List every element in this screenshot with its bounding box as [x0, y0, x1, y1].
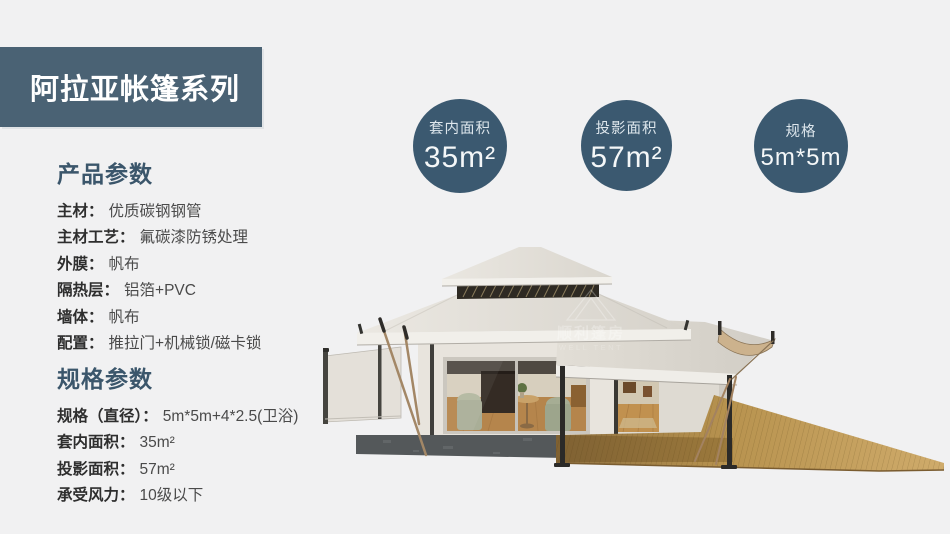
tent-cupola [442, 247, 612, 299]
tent-corner-post [430, 342, 434, 435]
param-row-material: 主材：优质碳钢钢管 [57, 199, 261, 225]
tent-illustration: 顺利篷房 WELL TENT [323, 228, 947, 528]
spec-params-heading: 规格参数 [57, 360, 298, 394]
tent-left-flap [323, 345, 401, 424]
badge-projection-area-label: 投影面积 [596, 117, 658, 138]
spec-row-size: 规格（直径）：5m*5m+4*2.5(卫浴) [57, 404, 298, 430]
watermark-en: WELL TENT [559, 343, 623, 352]
param-row-config: 配置：推拉门+机械锁/磁卡锁 [57, 331, 261, 357]
watermark-cn: 顺利篷房 [557, 324, 625, 342]
badge-size-label: 规格 [786, 120, 817, 141]
spec-params-section: 规格参数 规格（直径）：5m*5m+4*2.5(卫浴) 套内面积：35m² 投影… [57, 360, 298, 510]
param-row-wall: 墙体：帆布 [57, 305, 261, 331]
badge-inner-area-value: 35m² [424, 141, 496, 175]
param-row-material-craft: 主材工艺：氟碳漆防锈处理 [57, 225, 261, 251]
param-row-insulation: 隔热层：铝箔+PVC [57, 278, 261, 304]
badge-projection-area-value: 57m² [590, 141, 662, 175]
tent-junction-post [614, 372, 618, 435]
param-row-outer-membrane: 外膜：帆布 [57, 252, 261, 278]
spec-row-wind-resistance: 承受风力：10级以下 [57, 483, 298, 509]
badge-inner-area-label: 套内面积 [429, 117, 491, 138]
badge-projection-area: 投影面积 57m² [581, 100, 672, 191]
badge-inner-area: 套内面积 35m² [413, 99, 507, 193]
product-params-heading: 产品参数 [57, 155, 261, 189]
product-params-section: 产品参数 主材：优质碳钢钢管 主材工艺：氟碳漆防锈处理 外膜：帆布 隔热层：铝箔… [57, 155, 261, 357]
badge-size-value: 5m*5m [760, 144, 841, 172]
series-title-banner: 阿拉亚帐篷系列 [0, 47, 262, 127]
badge-size: 规格 5m*5m [754, 99, 848, 193]
spec-row-inner-area: 套内面积：35m² [57, 430, 298, 456]
page-title: 阿拉亚帐篷系列 [30, 66, 240, 108]
spec-row-projection-area: 投影面积：57m² [57, 457, 298, 483]
